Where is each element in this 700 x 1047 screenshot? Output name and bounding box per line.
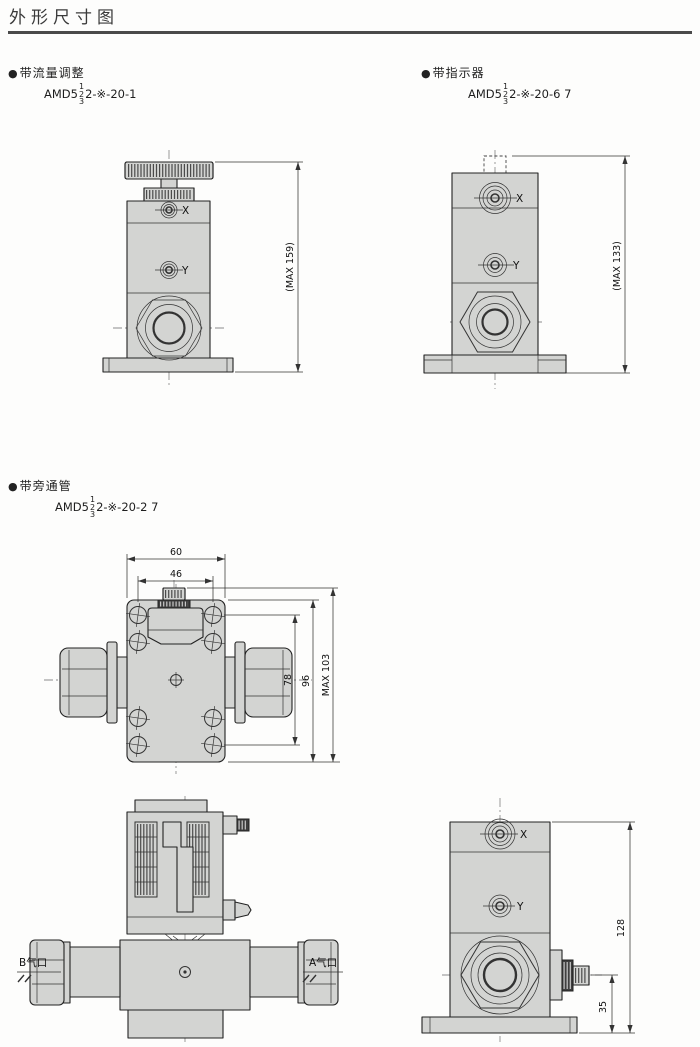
- model-suffix: 2-※-20-1: [85, 87, 136, 101]
- bypass-fitting-right: [225, 642, 292, 723]
- valve-body: [424, 173, 566, 373]
- dimension-max-height: (MAX 159): [215, 162, 303, 372]
- port-a-text: A气口: [309, 956, 337, 969]
- dim-46: 46: [170, 569, 182, 580]
- section-indicator-text: 带指示器: [433, 66, 485, 80]
- base-flange: [424, 355, 566, 373]
- base-flange: [422, 1017, 577, 1033]
- model-flow-adjust: AMD5 123 2-※-20-1: [44, 83, 136, 106]
- model-option-stack: 123: [79, 83, 84, 106]
- page-title: 外形尺寸图: [9, 3, 119, 28]
- drawing-bypass-side: X Y: [410, 792, 700, 1044]
- adjust-knob: [148, 580, 203, 644]
- section-flow-adjust-text: 带流量调整: [20, 66, 85, 80]
- port-y-label: Y: [512, 260, 520, 272]
- port-b-text: B气口: [19, 956, 47, 969]
- stack-option: 3: [503, 98, 508, 106]
- side-knob: [550, 950, 589, 1000]
- dim-max-133: (MAX 133): [612, 241, 623, 291]
- section-bypass-text: 带旁通管: [20, 479, 72, 493]
- drawing-bypass-top: 60 46 78 96 MAX 103: [42, 542, 362, 777]
- dimension-128: 128: [552, 822, 635, 1033]
- dim-128: 128: [616, 919, 627, 937]
- adjust-knob: [125, 162, 213, 201]
- port-x-label: X: [520, 829, 527, 841]
- stack-option: 3: [90, 511, 95, 519]
- port-y-label: Y: [516, 901, 524, 913]
- section-indicator-label: ●带指示器: [421, 64, 485, 81]
- section-flow-adjust-label: ●带流量调整: [8, 64, 85, 81]
- port-x-label: X: [182, 205, 189, 217]
- bullet-icon: ●: [8, 480, 19, 493]
- model-option-stack: 123: [90, 496, 95, 519]
- tee-body: [30, 940, 338, 1038]
- datasheet-page: 外形尺寸图 ●带流量调整 AMD5 123 2-※-20-1 ●带指示器 AMD…: [0, 0, 700, 1047]
- stack-option: 3: [79, 98, 84, 106]
- dim-max-103: MAX 103: [321, 654, 332, 696]
- bullet-icon: ●: [8, 67, 19, 80]
- model-bypass: AMD5 123 2-※-20-2 7: [55, 496, 158, 519]
- dim-35: 35: [598, 1001, 609, 1013]
- drawing-bypass-section: B气口 A气口: [15, 792, 345, 1044]
- dim-max-159: (MAX 159): [285, 242, 296, 292]
- bottom-foot: [128, 1010, 223, 1038]
- model-indicator: AMD5 123 2-※-20-6 7: [468, 83, 571, 106]
- model-prefix: AMD5: [44, 87, 78, 101]
- model-prefix: AMD5: [55, 500, 89, 514]
- dim-96: 96: [301, 675, 312, 687]
- dim-78: 78: [283, 674, 294, 686]
- drawing-indicator-front: X Y (MAX 133): [422, 146, 642, 391]
- port-y-label: Y: [181, 265, 189, 277]
- upper-housing: [127, 800, 251, 950]
- bullet-icon: ●: [421, 67, 432, 80]
- model-option-stack: 123: [503, 83, 508, 106]
- title-rule: [8, 31, 692, 34]
- valve-body: [103, 201, 233, 372]
- model-suffix: 2-※-20-6 7: [509, 87, 571, 101]
- drawing-flow-adjust-front: X Y (MAX 159): [97, 146, 307, 391]
- model-suffix: 2-※-20-2 7: [96, 500, 158, 514]
- section-bypass-label: ●带旁通管: [8, 477, 72, 494]
- port-x-label: X: [516, 193, 523, 205]
- valve-body: [450, 822, 550, 1017]
- model-prefix: AMD5: [468, 87, 502, 101]
- dim-60: 60: [170, 547, 182, 558]
- dimension-35: 35: [591, 975, 618, 1033]
- bypass-fitting-left: [60, 642, 127, 723]
